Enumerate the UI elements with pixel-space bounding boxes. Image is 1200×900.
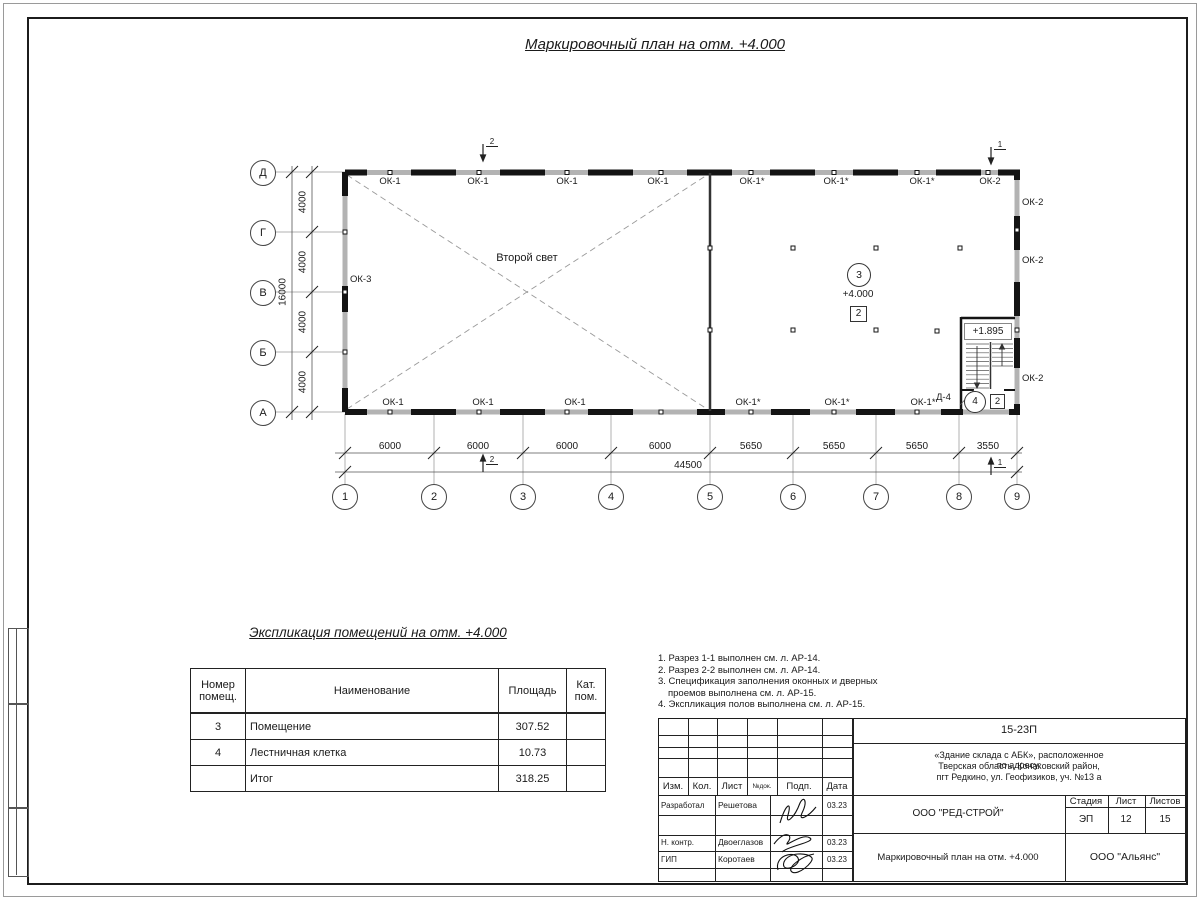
cell-category (567, 766, 606, 792)
axis-col-9: 9 (1004, 484, 1030, 510)
cell-name: Лестничная клетка (246, 740, 499, 766)
dim-6000-2: 6000 (467, 441, 489, 452)
window-label-top-8: ОК-2 (979, 176, 1000, 187)
sheet-label: Лист (1116, 796, 1137, 807)
dim-4000-2: 4000 (298, 251, 309, 273)
header-area: Площадь (499, 669, 567, 714)
stair-door-label: Д-4 (936, 392, 951, 403)
sheet-number-value: 12 (1120, 814, 1131, 825)
window-label-bottom-3: ОК-1 (564, 397, 585, 408)
note-1: 1. Разрез 1-1 выполнен см. л. АР-14. (658, 653, 820, 664)
axis-row-v: В (250, 280, 276, 306)
dim-4000-3: 4000 (298, 311, 309, 333)
stair-zone-box: 2 (990, 394, 1005, 409)
dim-5650-2: 5650 (823, 441, 845, 452)
note-3-cont: проемов выполнена см. л. АР-15. (668, 688, 816, 699)
window-label-top-2: ОК-1 (467, 176, 488, 187)
cell-category (567, 713, 606, 740)
section-marker-2-top: 2 (486, 137, 498, 147)
axis-col-5: 5 (697, 484, 723, 510)
name-normcontrol: Двоеглазов (718, 837, 763, 847)
cell-name: Помещение (246, 713, 499, 740)
window-label-top-3: ОК-1 (556, 176, 577, 187)
note-3: 3. Спецификация заполнения оконных и две… (658, 676, 878, 687)
dim-4000-4: 4000 (298, 371, 309, 393)
date-gip: 03.23 (827, 855, 847, 864)
date-developer: 03.23 (827, 801, 847, 810)
cell-number: 4 (191, 740, 246, 766)
cell-category (567, 740, 606, 766)
axis-col-3: 3 (510, 484, 536, 510)
window-label-right-1: ОК-2 (1022, 197, 1043, 208)
signature-normcontrol-gip (768, 828, 824, 880)
drawing-sheet: { "sheet": { "main_title": "Маркировочны… (0, 0, 1200, 900)
stair-number-circle: 4 (964, 391, 986, 413)
table-row: 4 Лестничная клетка 10.73 (191, 740, 606, 766)
window-label-left: ОК-3 (350, 274, 371, 285)
col-header-data: Дата (826, 781, 847, 792)
dim-5650-3: 5650 (906, 441, 928, 452)
table-row: 3 Помещение 307.52 (191, 713, 606, 740)
axis-col-6: 6 (780, 484, 806, 510)
axis-row-a: А (250, 400, 276, 426)
role-normcontrol: Н. контр. (661, 838, 694, 847)
axis-col-2: 2 (421, 484, 447, 510)
window-label-bottom-1: ОК-1 (382, 397, 403, 408)
name-gip: Коротаев (718, 854, 755, 864)
cell-area: 10.73 (499, 740, 567, 766)
room-zone-box: 2 (850, 306, 867, 322)
window-label-right-2: ОК-2 (1022, 255, 1043, 266)
col-header-kol: Кол. (693, 781, 712, 792)
axis-row-g: Г (250, 220, 276, 246)
dim-16000: 16000 (278, 278, 289, 306)
section-marker-1-top: 1 (994, 140, 1006, 150)
object-address-line3: пгт Редкино, ул. Геофизиков, уч. №13 а (937, 772, 1102, 782)
role-gip: ГИП (661, 855, 677, 864)
axis-col-1: 1 (332, 484, 358, 510)
dim-6000-3: 6000 (556, 441, 578, 452)
col-header-podp: Подп. (786, 781, 811, 792)
dim-6000-1: 6000 (379, 441, 401, 452)
window-label-top-1: ОК-1 (379, 176, 400, 187)
stage-label: Стадия (1070, 796, 1102, 807)
section-marker-1-bottom: 1 (994, 458, 1006, 468)
stair-elevation-label: +1.895 (964, 323, 1012, 340)
dim-5650-1: 5650 (740, 441, 762, 452)
sheets-label: Листов (1150, 796, 1181, 807)
cell-area: 307.52 (499, 713, 567, 740)
window-label-top-4: ОК-1 (647, 176, 668, 187)
date-normcontrol: 03.23 (827, 838, 847, 847)
header-category: Кат.пом. (567, 669, 606, 714)
cell-number (191, 766, 246, 792)
dim-6000-4: 6000 (649, 441, 671, 452)
dim-44500: 44500 (671, 460, 705, 471)
axis-row-d: Д (250, 160, 276, 186)
window-label-top-5: ОК-1* (739, 176, 764, 187)
col-header-izm: Изм. (663, 781, 683, 792)
sheets-total-value: 15 (1159, 814, 1170, 825)
second-light-label: Второй свет (493, 252, 560, 264)
sheet-title: Маркировочный план на отм. +4.000 (877, 852, 1038, 863)
window-label-bottom-2: ОК-1 (472, 397, 493, 408)
dim-3550: 3550 (977, 441, 999, 452)
room-number-circle: 3 (847, 263, 871, 287)
window-label-bottom-6: ОК-1* (910, 397, 935, 408)
axis-row-b: Б (250, 340, 276, 366)
section-marker-2-bottom: 2 (486, 455, 498, 465)
design-company: ООО "РЕД-СТРОЙ" (912, 808, 1003, 819)
cell-number: 3 (191, 713, 246, 740)
doc-number: 15-23П (1001, 724, 1037, 736)
axis-col-4: 4 (598, 484, 624, 510)
header-name: Наименование (246, 669, 499, 714)
explication-table: Номерпомещ. Наименование Площадь Кат.пом… (190, 668, 606, 792)
col-header-list: Лист (722, 781, 743, 792)
window-label-right-3: ОК-2 (1022, 373, 1043, 384)
name-developer: Решетова (718, 800, 757, 810)
window-label-top-7: ОК-1* (909, 176, 934, 187)
room-elevation-label: +4.000 (841, 289, 876, 300)
cell-area: 318.25 (499, 766, 567, 792)
object-address-line2: Тверская область, Конаковский район, (938, 761, 1100, 771)
window-label-top-6: ОК-1* (823, 176, 848, 187)
axis-col-8: 8 (946, 484, 972, 510)
header-room-number: Номерпомещ. (191, 669, 246, 714)
col-header-doc: №док. (752, 783, 771, 790)
note-2: 2. Разрез 2-2 выполнен см. л. АР-14. (658, 665, 820, 676)
axis-col-7: 7 (863, 484, 889, 510)
cell-name: Итог (246, 766, 499, 792)
window-label-bottom-4: ОК-1* (735, 397, 760, 408)
dim-4000-1: 4000 (298, 191, 309, 213)
contractor-company: ООО "Альянс" (1090, 851, 1160, 863)
explication-header-row: Номерпомещ. Наименование Площадь Кат.пом… (191, 669, 606, 714)
explication-title: Экспликация помещений на отм. +4.000 (249, 625, 507, 640)
note-4: 4. Экспликация полов выполнена см. л. АР… (658, 699, 865, 710)
table-row: Итог 318.25 (191, 766, 606, 792)
stage-value: ЭП (1079, 814, 1093, 825)
window-label-bottom-5: ОК-1* (824, 397, 849, 408)
role-developer: Разработал (661, 801, 705, 810)
